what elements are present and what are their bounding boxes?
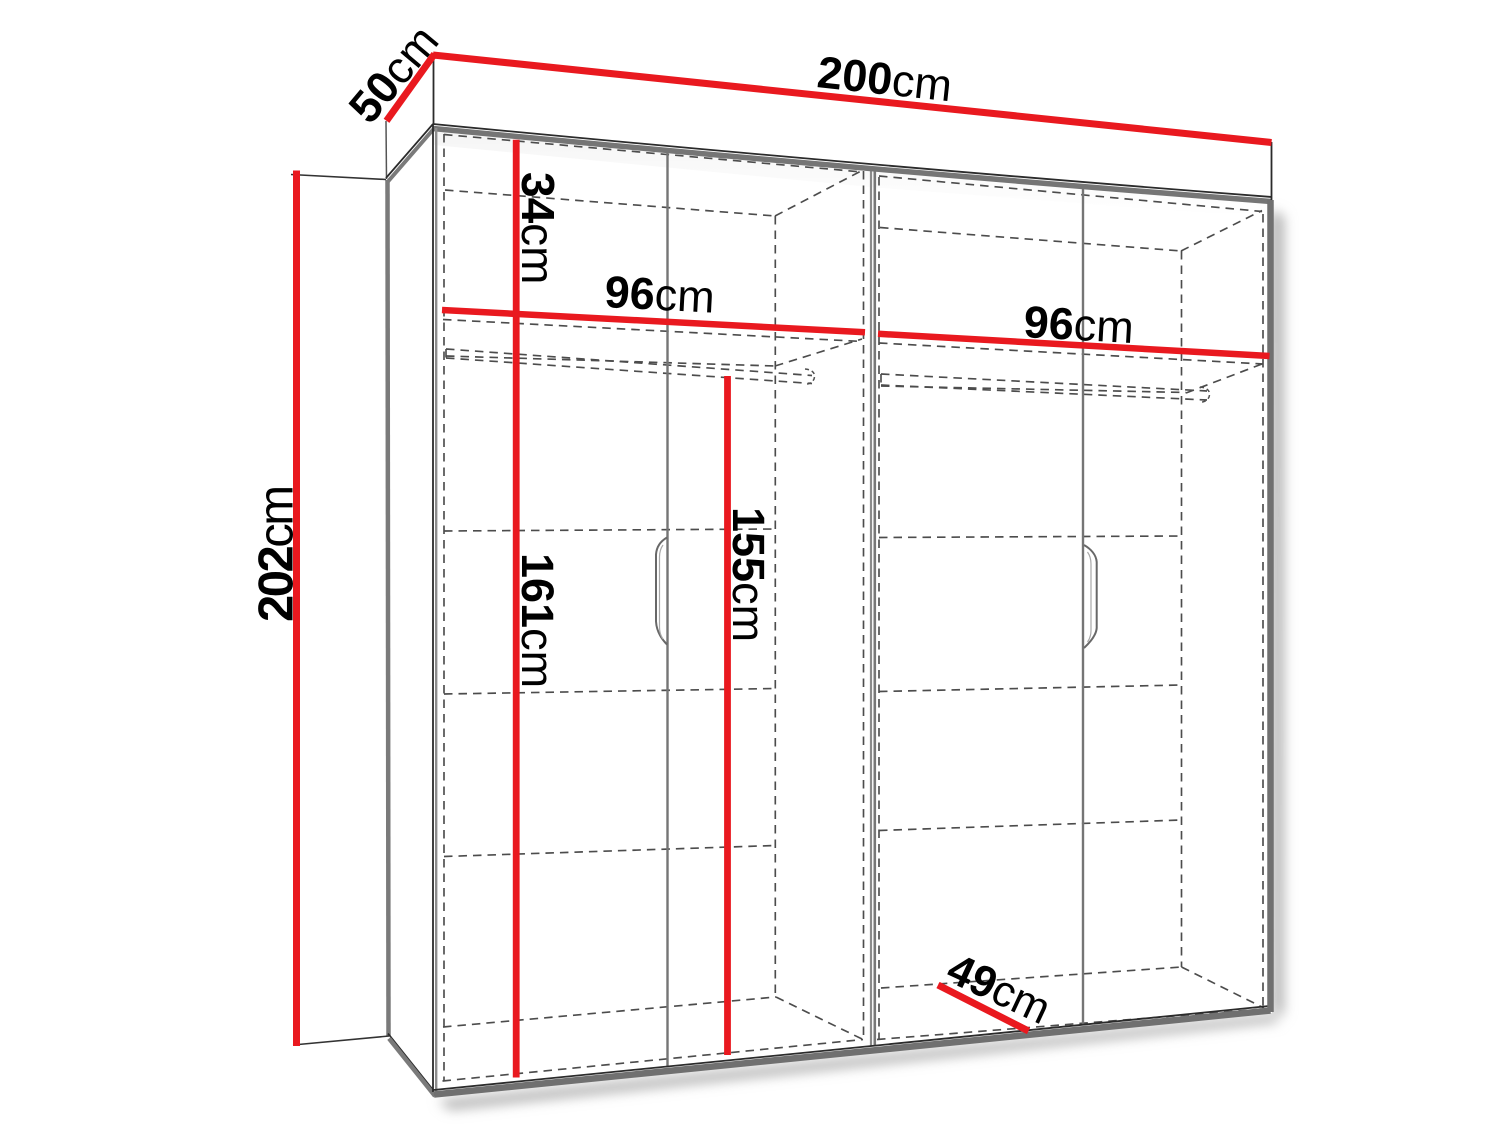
svg-text:161cm: 161cm — [512, 553, 563, 688]
svg-text:34cm: 34cm — [512, 172, 564, 285]
svg-text:155cm: 155cm — [723, 507, 774, 642]
svg-text:96cm: 96cm — [1022, 296, 1135, 353]
svg-text:202cm: 202cm — [250, 487, 304, 622]
svg-text:96cm: 96cm — [603, 266, 716, 323]
